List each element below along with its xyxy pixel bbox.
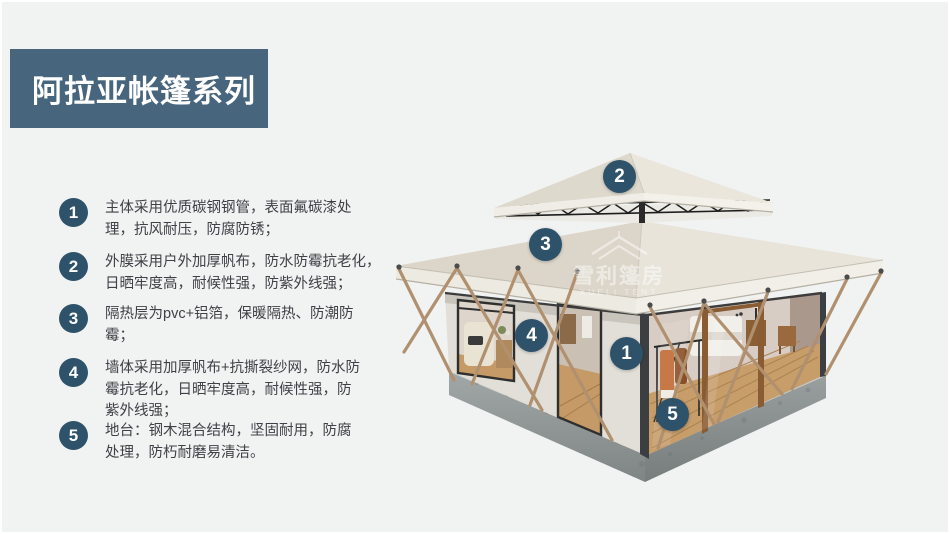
tent-marker-5: 5 bbox=[656, 398, 689, 431]
corner-column bbox=[640, 313, 649, 459]
feature-text: 地台：钢木混合结构，坚固耐用，防腐 处理，防朽耐磨易清洁。 bbox=[105, 421, 415, 464]
tent-marker-2: 2 bbox=[603, 160, 636, 193]
feature-number-badge: 1 bbox=[59, 198, 88, 227]
feature-number-badge: 5 bbox=[59, 421, 88, 450]
feature-item-3: 3 隔热层为pvc+铝箔，保暖隔热、防潮防 霉； bbox=[59, 304, 415, 347]
feature-number-badge: 2 bbox=[59, 252, 88, 281]
feature-number-badge: 4 bbox=[59, 358, 88, 387]
series-title-box: 阿拉亚帐篷系列 bbox=[10, 49, 268, 128]
feature-item-1: 1 主体采用优质碳钢钢管，表面氟碳漆处 理，抗风耐压，防腐防锈； bbox=[59, 198, 415, 241]
feature-text: 外膜采用户外加厚帆布，防水防霉抗老化， 日晒牢度高，耐候性强，防紫外线强； bbox=[105, 252, 415, 295]
plant bbox=[498, 326, 506, 334]
tent-marker-1: 1 bbox=[610, 337, 643, 370]
feature-text: 主体采用优质碳钢钢管，表面氟碳漆处 理，抗风耐压，防腐防锈； bbox=[105, 198, 415, 241]
left-window bbox=[458, 300, 514, 381]
watermark-cn: 雪利篷房 bbox=[573, 264, 665, 288]
slide-canvas: 阿拉亚帐篷系列 1 主体采用优质碳钢钢管，表面氟碳漆处 理，抗风耐压，防腐防锈；… bbox=[0, 0, 950, 534]
feature-item-4: 4 墙体采用加厚帆布+抗撕裂纱网，防水防 霉抗老化，日晒牢度高，耐候性强，防 紫… bbox=[59, 358, 415, 423]
feature-text: 隔热层为pvc+铝箔，保暖隔热、防潮防 霉； bbox=[105, 304, 415, 347]
watermark-en: XUELI TENT bbox=[580, 287, 659, 297]
feature-item-5: 5 地台：钢木混合结构，坚固耐用，防腐 处理，防朽耐磨易清洁。 bbox=[59, 421, 415, 464]
tent-marker-4: 4 bbox=[515, 319, 548, 352]
page-title: 阿拉亚帐篷系列 bbox=[32, 66, 256, 111]
tent-marker-3: 3 bbox=[529, 228, 562, 261]
feature-text: 墙体采用加厚帆布+抗撕裂纱网，防水防 霉抗老化，日晒牢度高，耐候性强，防 紫外线… bbox=[105, 358, 415, 423]
feature-item-2: 2 外膜采用户外加厚帆布，防水防霉抗老化， 日晒牢度高，耐候性强，防紫外线强； bbox=[59, 252, 415, 295]
tent-illustration: 雪利篷房 XUELI TENT bbox=[387, 144, 932, 504]
left-doorway bbox=[558, 304, 601, 435]
feature-number-badge: 3 bbox=[59, 304, 88, 333]
